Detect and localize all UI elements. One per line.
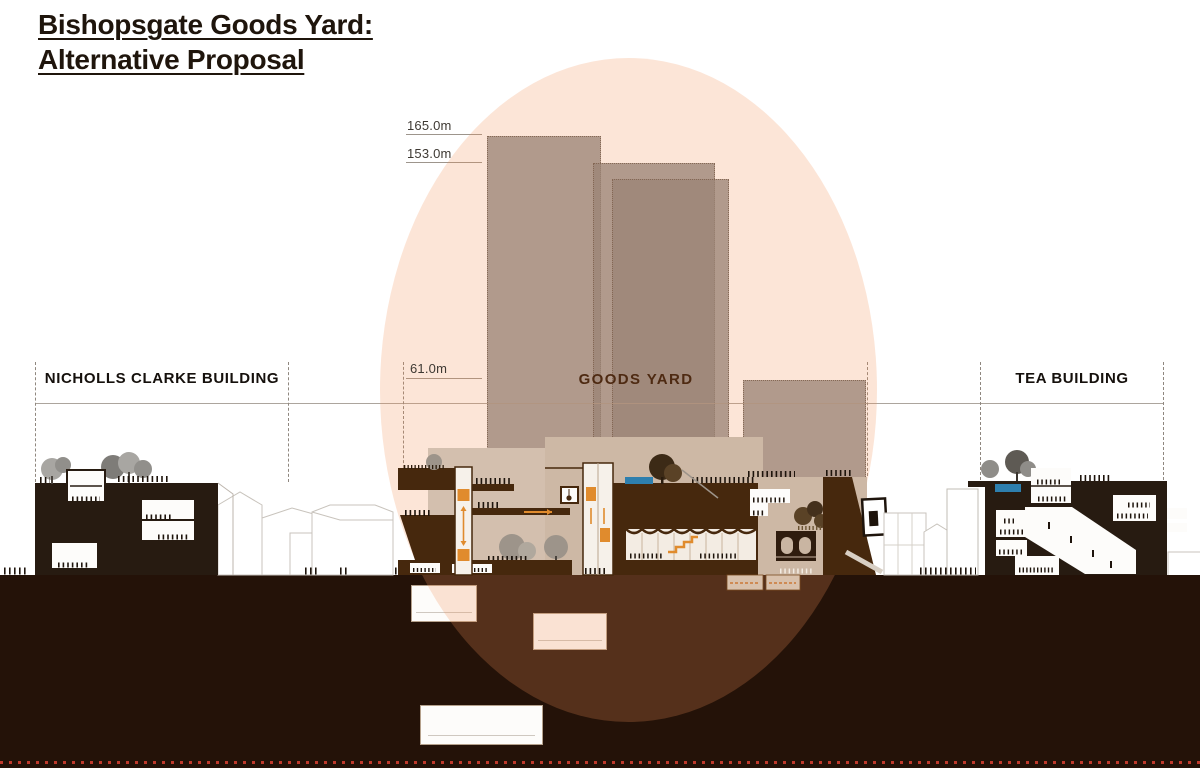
height-label-165m: 165.0m — [407, 118, 452, 133]
tea-building-section — [968, 450, 1200, 575]
tree — [981, 460, 999, 478]
goods-yard-section — [398, 437, 882, 590]
lift-car — [600, 528, 610, 542]
page-title: Bishopsgate Goods Yard: Alternative Prop… — [38, 8, 468, 77]
tea-roof-arm — [968, 481, 988, 487]
arch-niche — [799, 537, 811, 554]
tree — [544, 535, 568, 559]
height-label-153m: 153.0m — [407, 146, 452, 161]
lift-car — [586, 487, 596, 501]
outline-building — [947, 489, 978, 575]
deck-1 — [472, 484, 514, 491]
outline-building — [884, 513, 926, 575]
label-tea-building: TEA BUILDING — [980, 370, 1164, 387]
outline-building — [1168, 552, 1200, 575]
tea-rooftop-pool — [995, 484, 1021, 492]
lift-car — [458, 549, 470, 561]
arch-niche — [781, 537, 793, 554]
tea-room-edge — [1167, 508, 1187, 519]
title-line-2: Alternative Proposal — [38, 43, 468, 78]
right-context-buildings — [862, 489, 978, 575]
left-context-buildings — [218, 492, 393, 575]
label-goods-yard: GOODS YARD — [545, 371, 727, 388]
site-boundary-red-dashed-line — [0, 761, 1200, 764]
tree-dark — [664, 464, 682, 482]
label-nicholls-clarke-building: NICHOLLS CLARKE BUILDING — [35, 370, 289, 387]
nicholls-clarke-section — [35, 452, 233, 575]
outline-building — [924, 524, 950, 575]
tea-room-left-2 — [996, 540, 1027, 556]
architectural-section-diagram: Bishopsgate Goods Yard: Alternative Prop… — [0, 0, 1200, 768]
tea-room-edge — [1167, 523, 1187, 532]
market-arcade — [626, 529, 756, 560]
rooftop-pool — [625, 477, 653, 484]
title-line-1: Bishopsgate Goods Yard: — [38, 8, 468, 43]
height-label-61m: 61.0m — [410, 361, 447, 376]
lift-car — [458, 489, 470, 501]
deck-2 — [472, 508, 570, 515]
